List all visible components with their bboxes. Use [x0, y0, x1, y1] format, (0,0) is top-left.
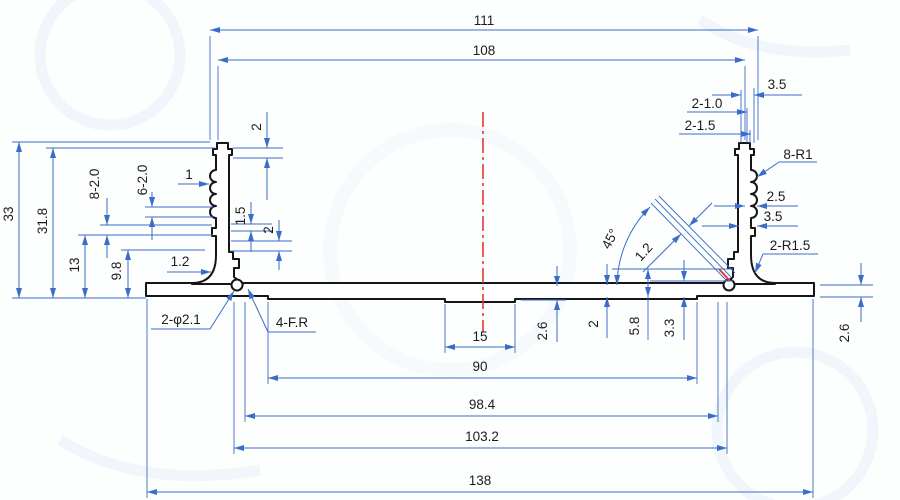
left-hole	[232, 280, 243, 291]
dim-label-3-5: 3.5	[764, 209, 783, 224]
dim-label-9-8: 9.8	[109, 262, 124, 281]
dim-label-31-8: 31.8	[35, 208, 50, 234]
dim-label-2-phi2-1: 2-φ2.1	[161, 312, 201, 327]
dim-label-right-2-6: 2.6	[837, 324, 852, 343]
dim-label-108: 108	[473, 43, 496, 58]
dim-label-4-FR: 4-F.R	[276, 315, 309, 330]
dim-label-8-R1: 8-R1	[783, 147, 812, 162]
dim-label-1-5: 1.5	[233, 207, 248, 226]
dim-label-1: 1	[185, 167, 193, 182]
dim-label-2-1-0: 2-1.0	[692, 96, 723, 111]
dim-label-15: 15	[472, 329, 487, 344]
dimension-labels: 111 108 3.5 2-1.0 2-1.5 8-R1 2.5 3.5 2-R…	[1, 13, 852, 488]
dim-label-13: 13	[67, 257, 82, 272]
dim-label-98-4: 98.4	[469, 397, 496, 412]
dim-label-left-1-2: 1.2	[171, 254, 190, 269]
dim-label-5-8: 5.8	[627, 317, 642, 336]
dim-label-2-R1-5: 2-R1.5	[770, 238, 811, 253]
dim-label-3-3: 3.3	[662, 319, 677, 338]
dim-label-103-2: 103.2	[465, 429, 499, 444]
dim-label-33: 33	[1, 206, 16, 221]
dim-label-8-2-0: 8-2.0	[87, 169, 102, 200]
dim-label-left-2: 2	[261, 226, 276, 234]
dim-label-top-3-5: 3.5	[768, 77, 787, 92]
dim-label-2: 2	[586, 320, 601, 328]
technical-drawing-canvas: 111 108 3.5 2-1.0 2-1.5 8-R1 2.5 3.5 2-R…	[0, 0, 900, 500]
dim-label-2-5: 2.5	[767, 189, 786, 204]
dim-label-slot-1-2: 1.2	[632, 240, 656, 264]
dim-label-90: 90	[472, 359, 487, 374]
drawing-sheet: 111 108 3.5 2-1.0 2-1.5 8-R1 2.5 3.5 2-R…	[0, 0, 900, 500]
dim-label-6-2-0: 6-2.0	[135, 165, 150, 196]
base-plate	[146, 283, 814, 302]
dim-label-111: 111	[474, 13, 495, 28]
dim-label-138: 138	[469, 473, 492, 488]
dim-label-top-left-2: 2	[249, 123, 264, 131]
dim-label-2-1-5: 2-1.5	[685, 118, 716, 133]
dim-label-45deg: 45°	[599, 226, 622, 251]
dim-label-2-6: 2.6	[535, 322, 550, 341]
